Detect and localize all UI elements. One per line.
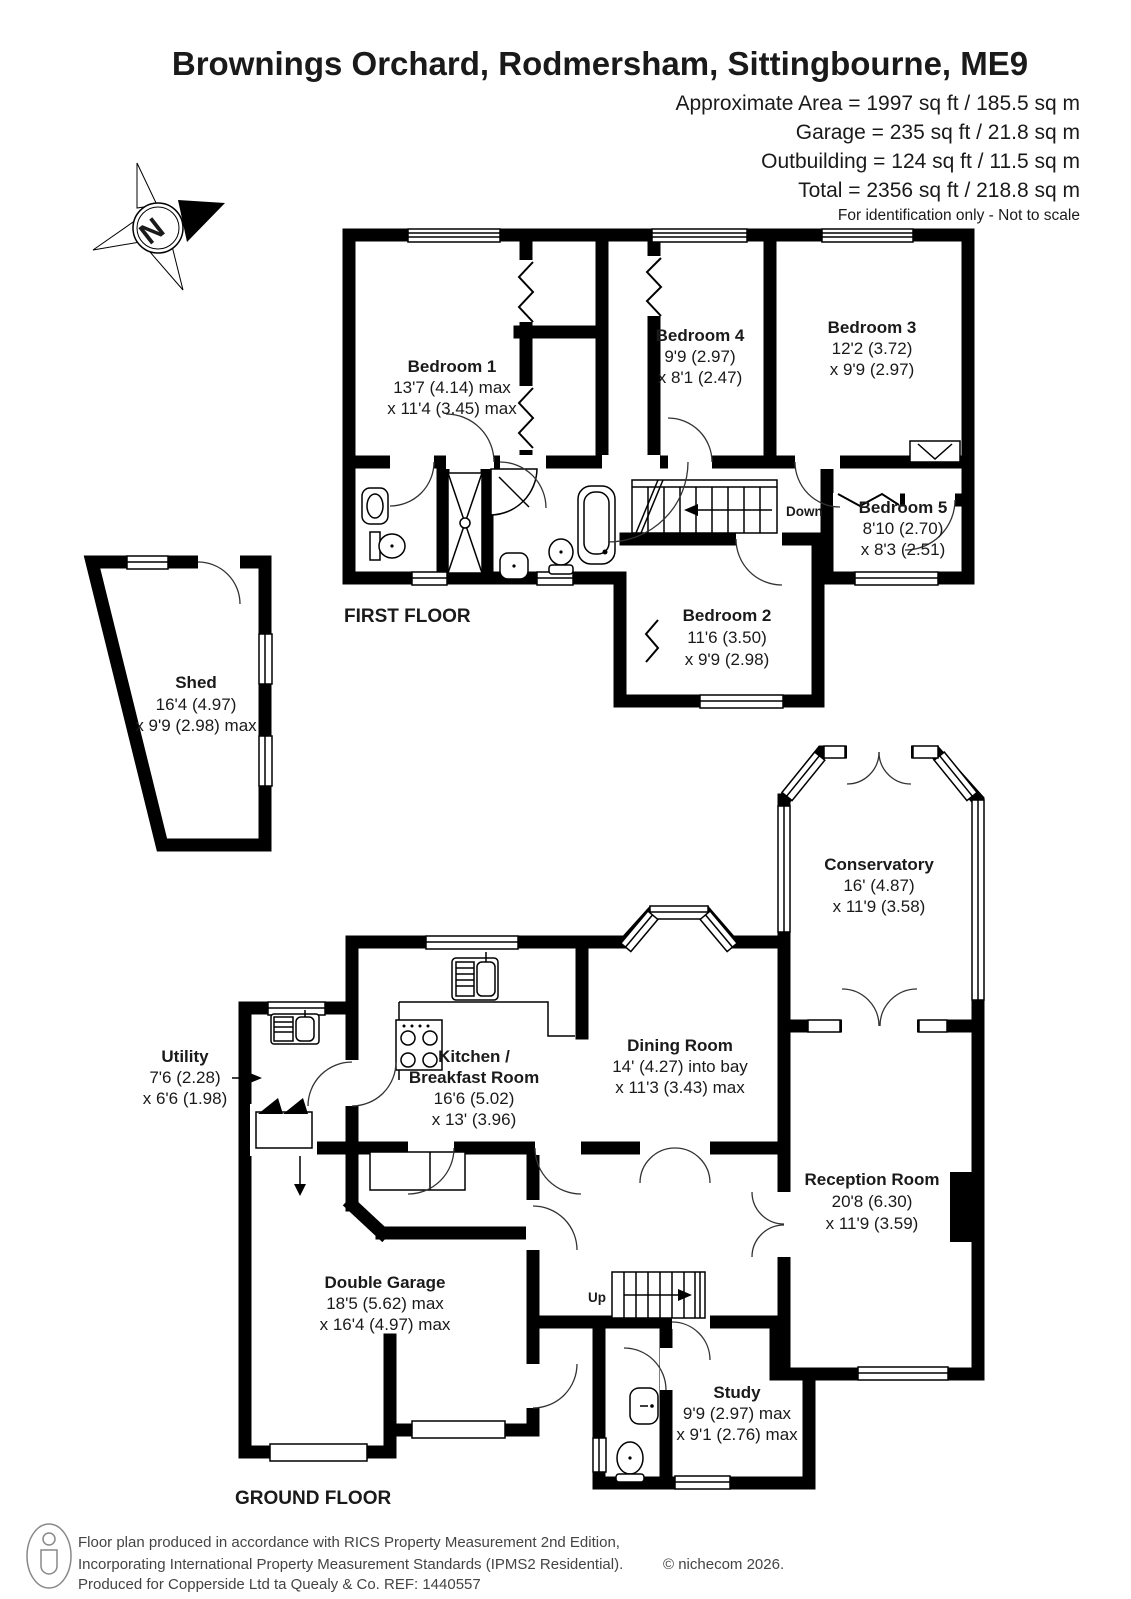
svg-text:x 9'1 (2.76) max: x 9'1 (2.76) max	[676, 1425, 798, 1444]
svg-text:x 11'3 (3.43) max: x 11'3 (3.43) max	[615, 1078, 745, 1097]
footer-line-3: Produced for Copperside Ltd ta Quealy & …	[78, 1576, 481, 1593]
svg-text:Reception Room: Reception Room	[804, 1170, 939, 1189]
svg-text:x 11'4 (3.45) max: x 11'4 (3.45) max	[387, 399, 517, 418]
area-line: Outbuilding = 124 sq ft / 11.5 sq m	[761, 150, 1080, 173]
garage-door	[270, 1444, 367, 1461]
first-floor-plan: Bedroom 1 13'7 (4.14) max x 11'4 (3.45) …	[344, 229, 968, 708]
svg-text:x 13' (3.96): x 13' (3.96)	[432, 1110, 517, 1129]
copyright-text: © nichecom 2026.	[663, 1556, 784, 1573]
svg-text:9'9 (2.97): 9'9 (2.97)	[664, 347, 735, 366]
svg-text:x 8'3 (2.51): x 8'3 (2.51)	[861, 540, 946, 559]
svg-text:x 9'9 (2.98): x 9'9 (2.98)	[685, 650, 770, 669]
svg-text:11'6 (3.50): 11'6 (3.50)	[687, 628, 766, 647]
person-icon	[27, 1524, 71, 1588]
svg-text:Bedroom 5: Bedroom 5	[859, 498, 948, 517]
svg-text:13'7 (4.14) max: 13'7 (4.14) max	[393, 378, 511, 397]
room-label-double-garage: Double Garage 18'5 (5.62) max x 16'4 (4.…	[320, 1273, 451, 1334]
svg-text:16' (4.87): 16' (4.87)	[843, 876, 914, 895]
footer: Floor plan produced in accordance with R…	[27, 1524, 784, 1593]
svg-text:Bedroom 3: Bedroom 3	[828, 318, 917, 337]
room-label-bedroom-5: Bedroom 5 8'10 (2.70) x 8'3 (2.51)	[859, 498, 948, 559]
room-label-bedroom-2: Bedroom 2 11'6 (3.50) x 9'9 (2.98)	[683, 606, 772, 669]
floorplan-page: Brownings Orchard, Rodmersham, Sittingbo…	[0, 0, 1131, 1599]
footer-line-2: Incorporating International Property Mea…	[78, 1556, 623, 1573]
utility-sink	[271, 1010, 319, 1044]
svg-text:Kitchen /: Kitchen /	[438, 1047, 510, 1066]
svg-text:Utility: Utility	[161, 1047, 209, 1066]
svg-text:18'5 (5.62) max: 18'5 (5.62) max	[326, 1294, 444, 1313]
room-label-bedroom-3: Bedroom 3 12'2 (3.72) x 9'9 (2.97)	[828, 318, 917, 379]
area-line: Total = 2356 sq ft / 218.8 sq m	[798, 179, 1080, 202]
floor-plan-svg: Brownings Orchard, Rodmersham, Sittingbo…	[0, 0, 1131, 1599]
north-compass-icon: N	[93, 163, 225, 290]
area-line: Approximate Area = 1997 sq ft / 185.5 sq…	[676, 92, 1081, 115]
svg-text:x 6'6 (1.98): x 6'6 (1.98)	[143, 1089, 228, 1108]
svg-text:7'6 (2.28): 7'6 (2.28)	[149, 1068, 220, 1087]
svg-text:12'2 (3.72): 12'2 (3.72)	[832, 339, 913, 358]
stairs-up	[612, 1272, 705, 1318]
svg-text:x 9'9 (2.98) max: x 9'9 (2.98) max	[135, 716, 257, 735]
svg-text:Double Garage: Double Garage	[325, 1273, 446, 1292]
page-title: Brownings Orchard, Rodmersham, Sittingbo…	[172, 45, 1028, 82]
stairs-down-label: Down	[786, 504, 823, 519]
svg-text:8'10 (2.70): 8'10 (2.70)	[863, 519, 944, 538]
ground-floor-label: GROUND FLOOR	[235, 1488, 391, 1509]
header: Brownings Orchard, Rodmersham, Sittingbo…	[172, 45, 1080, 224]
stairs-up-label: Up	[588, 1290, 606, 1305]
svg-text:Bedroom 4: Bedroom 4	[656, 326, 745, 345]
svg-text:16'4 (4.97): 16'4 (4.97)	[156, 695, 237, 714]
area-line: Garage = 235 sq ft / 21.8 sq m	[796, 121, 1080, 144]
disclaimer-text: For identification only - Not to scale	[838, 207, 1080, 224]
svg-text:Study: Study	[713, 1383, 761, 1402]
svg-text:Conservatory: Conservatory	[824, 855, 934, 874]
svg-text:9'9 (2.97) max: 9'9 (2.97) max	[683, 1404, 792, 1423]
svg-text:Bedroom 1: Bedroom 1	[408, 357, 497, 376]
svg-text:x 16'4 (4.97) max: x 16'4 (4.97) max	[320, 1315, 451, 1334]
svg-text:14' (4.27) into bay: 14' (4.27) into bay	[612, 1057, 748, 1076]
svg-text:Dining Room: Dining Room	[627, 1036, 733, 1055]
ground-floor-plan: Conservatory 16' (4.87) x 11'9 (3.58) Di…	[143, 745, 984, 1509]
svg-text:x 9'9 (2.97): x 9'9 (2.97)	[830, 360, 915, 379]
room-label-bedroom-4: Bedroom 4 9'9 (2.97) x 8'1 (2.47)	[656, 326, 745, 387]
stairs-down	[632, 480, 777, 533]
room-label-dining-room: Dining Room 14' (4.27) into bay x 11'3 (…	[612, 1036, 748, 1097]
garage-door	[412, 1421, 505, 1438]
svg-text:20'8 (6.30): 20'8 (6.30)	[832, 1192, 913, 1211]
svg-text:16'6 (5.02): 16'6 (5.02)	[434, 1089, 515, 1108]
svg-text:x 11'9 (3.59): x 11'9 (3.59)	[826, 1214, 919, 1233]
chimney-breast	[950, 1172, 984, 1242]
counter	[370, 1152, 465, 1190]
first-floor-label: FIRST FLOOR	[344, 606, 471, 627]
svg-text:x 8'1 (2.47): x 8'1 (2.47)	[658, 368, 743, 387]
svg-text:Breakfast Room: Breakfast Room	[409, 1068, 539, 1087]
shed-plan: Shed 16'4 (4.97) x 9'9 (2.98) max	[92, 555, 272, 845]
svg-text:x 11'9 (3.58): x 11'9 (3.58)	[833, 897, 926, 916]
footer-line-1: Floor plan produced in accordance with R…	[78, 1534, 620, 1551]
svg-text:Shed: Shed	[175, 673, 217, 692]
svg-text:Bedroom 2: Bedroom 2	[683, 606, 772, 625]
